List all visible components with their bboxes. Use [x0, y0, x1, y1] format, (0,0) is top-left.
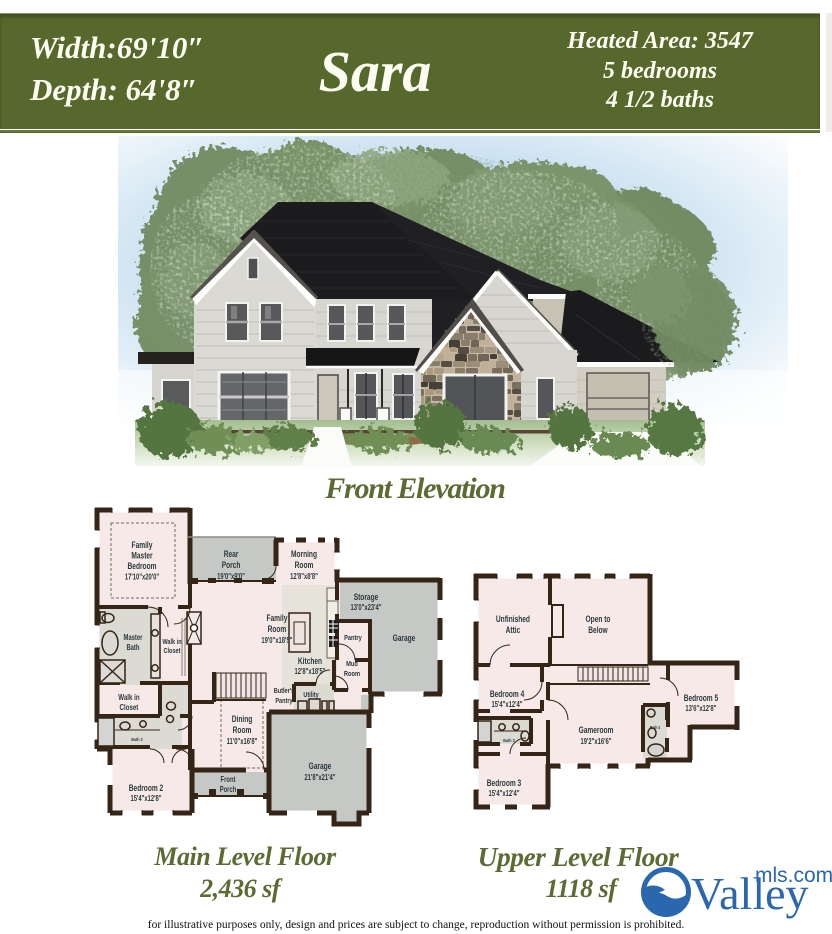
svg-text:Dining: Dining — [232, 714, 253, 724]
svg-text:15'4"x12'4": 15'4"x12'4" — [492, 701, 523, 709]
svg-text:Garage: Garage — [393, 633, 416, 643]
svg-text:Pantry: Pantry — [344, 634, 362, 642]
svg-text:Gameroom: Gameroom — [579, 725, 614, 735]
svg-text:Butler's: Butler's — [274, 687, 295, 695]
svg-text:Closet: Closet — [164, 647, 182, 655]
svg-text:Room: Room — [295, 560, 314, 570]
svg-text:19'0"x9'0": 19'0"x9'0" — [217, 573, 245, 581]
svg-text:Bedroom 3: Bedroom 3 — [487, 778, 522, 788]
svg-text:Open to: Open to — [586, 614, 611, 624]
svg-text:15'4"x12'4": 15'4"x12'4" — [488, 790, 519, 798]
svg-text:Kitchen: Kitchen — [298, 656, 322, 666]
svg-text:21'8"x21'4": 21'8"x21'4" — [304, 774, 335, 782]
svg-text:Mud: Mud — [346, 660, 358, 668]
svg-text:Room: Room — [344, 670, 360, 678]
svg-text:Closet: Closet — [120, 702, 139, 712]
svg-text:19'0"x18'5": 19'0"x18'5" — [261, 637, 292, 645]
svg-text:12'8"x8'8": 12'8"x8'8" — [290, 573, 318, 581]
svg-text:Bedroom 2: Bedroom 2 — [129, 783, 164, 793]
svg-text:Porch: Porch — [220, 786, 237, 794]
svg-text:11'0"x16'8": 11'0"x16'8" — [227, 738, 258, 746]
svg-text:Front: Front — [221, 776, 237, 784]
svg-text:Pantry: Pantry — [275, 697, 293, 705]
svg-text:Family: Family — [132, 540, 153, 550]
svg-text:Garage: Garage — [309, 761, 332, 771]
svg-text:12'8"x18'5": 12'8"x18'5" — [294, 668, 325, 676]
svg-text:Room: Room — [268, 624, 287, 634]
svg-text:Utility: Utility — [303, 691, 319, 699]
svg-text:Family: Family — [267, 613, 288, 623]
svg-text:Bath 2: Bath 2 — [131, 736, 143, 742]
svg-text:Unfinished: Unfinished — [496, 614, 530, 624]
svg-text:Bedroom 5: Bedroom 5 — [684, 693, 719, 703]
svg-text:Bath 3: Bath 3 — [503, 737, 515, 743]
svg-text:13'0"x23'4": 13'0"x23'4" — [350, 604, 381, 612]
svg-text:Morning: Morning — [291, 549, 317, 559]
svg-text:13'6"x12'8": 13'6"x12'8" — [685, 705, 716, 713]
svg-text:Below: Below — [588, 625, 608, 635]
svg-text:Attic: Attic — [506, 625, 521, 635]
svg-text:mls.com: mls.com — [755, 864, 832, 887]
svg-text:Rear: Rear — [224, 549, 239, 559]
svg-text:17'10"x20'0": 17'10"x20'0" — [125, 574, 159, 582]
svg-text:Room: Room — [233, 725, 252, 735]
svg-text:Porch: Porch — [222, 560, 241, 570]
svg-text:Bedroom 4: Bedroom 4 — [490, 689, 525, 699]
svg-text:Storage: Storage — [354, 592, 379, 602]
svg-text:Walk in: Walk in — [162, 638, 181, 646]
svg-text:Master: Master — [124, 634, 143, 642]
svg-text:15'4"x12'8": 15'4"x12'8" — [130, 795, 161, 803]
svg-text:Master: Master — [131, 551, 152, 561]
svg-text:Walk in: Walk in — [118, 692, 139, 702]
svg-text:Bath: Bath — [126, 644, 139, 652]
svg-text:Bath 4: Bath 4 — [650, 724, 661, 730]
svg-text:Bedroom: Bedroom — [128, 561, 157, 571]
svg-text:19'2"x16'6": 19'2"x16'6" — [580, 738, 611, 746]
